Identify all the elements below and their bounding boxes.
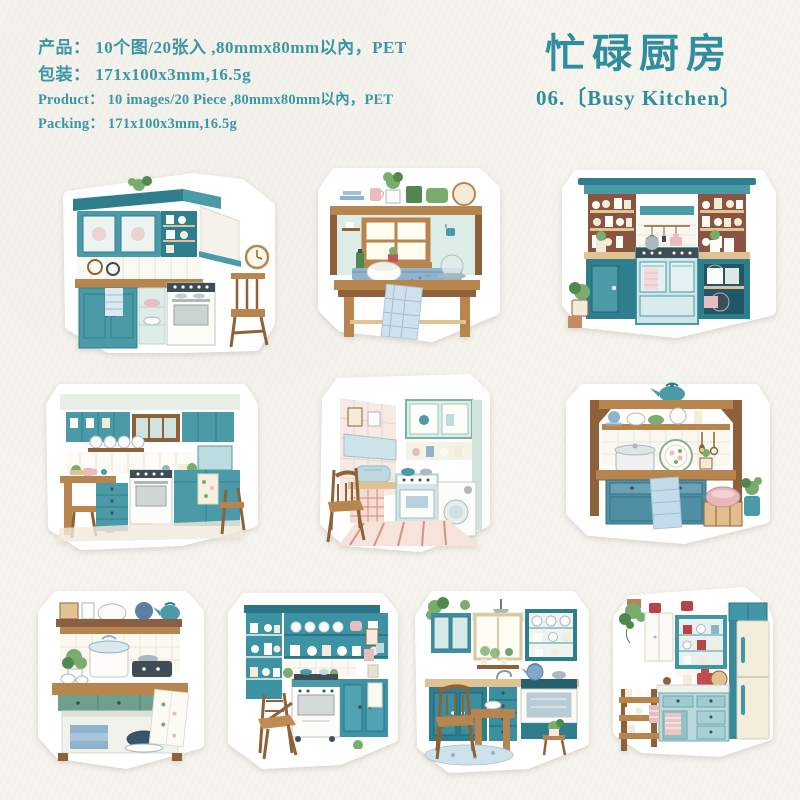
green-bench-illustration xyxy=(28,583,212,779)
teal-dish-wall-illustration xyxy=(218,583,404,779)
series-title-zh: 忙碌厨房 xyxy=(504,30,774,78)
sticker-teal-hutch xyxy=(552,160,784,350)
kitchen-room-illustration xyxy=(30,370,272,560)
sticker-retro-kitchen xyxy=(298,370,513,562)
product-line-zh: 产品： 10个图/20张入 ,80mmx80mm以內，PET xyxy=(38,34,407,61)
farm-table-illustration xyxy=(300,160,515,352)
product-line-en: Product： 10 images/20 Piece ,80mmx80mm以內… xyxy=(38,88,407,112)
wood-sideboard-illustration xyxy=(552,368,787,560)
sticker-kitchen-room xyxy=(30,370,272,560)
teal-hutch-illustration xyxy=(552,160,784,350)
packing-line-en: Packing： 171x100x3mm,16.5g xyxy=(38,112,407,136)
fridge-corner-illustration xyxy=(597,585,783,777)
sticker-window-kitchen xyxy=(405,583,595,783)
product-sheet: 产品： 10个图/20张入 ,80mmx80mm以內，PET 包装： 171x1… xyxy=(0,0,800,800)
sticker-fridge-corner xyxy=(597,585,783,777)
sticker-green-bench xyxy=(28,583,212,779)
sticker-farm-table xyxy=(300,160,515,352)
series-title-en: 06.〔Busy Kitchen〕 xyxy=(504,82,774,112)
sticker-wood-sideboard xyxy=(552,368,787,560)
packing-line-zh: 包装： 171x100x3mm,16.5g xyxy=(38,61,407,88)
window-kitchen-illustration xyxy=(405,583,595,783)
retro-kitchen-illustration xyxy=(298,370,513,562)
corner-kitchen-illustration xyxy=(35,163,285,353)
sticker-teal-dish-wall xyxy=(218,583,404,779)
series-title: 忙碌厨房 06.〔Busy Kitchen〕 xyxy=(504,30,774,112)
sticker-corner-kitchen xyxy=(35,163,285,353)
product-info: 产品： 10个图/20张入 ,80mmx80mm以內，PET 包装： 171x1… xyxy=(38,34,407,136)
